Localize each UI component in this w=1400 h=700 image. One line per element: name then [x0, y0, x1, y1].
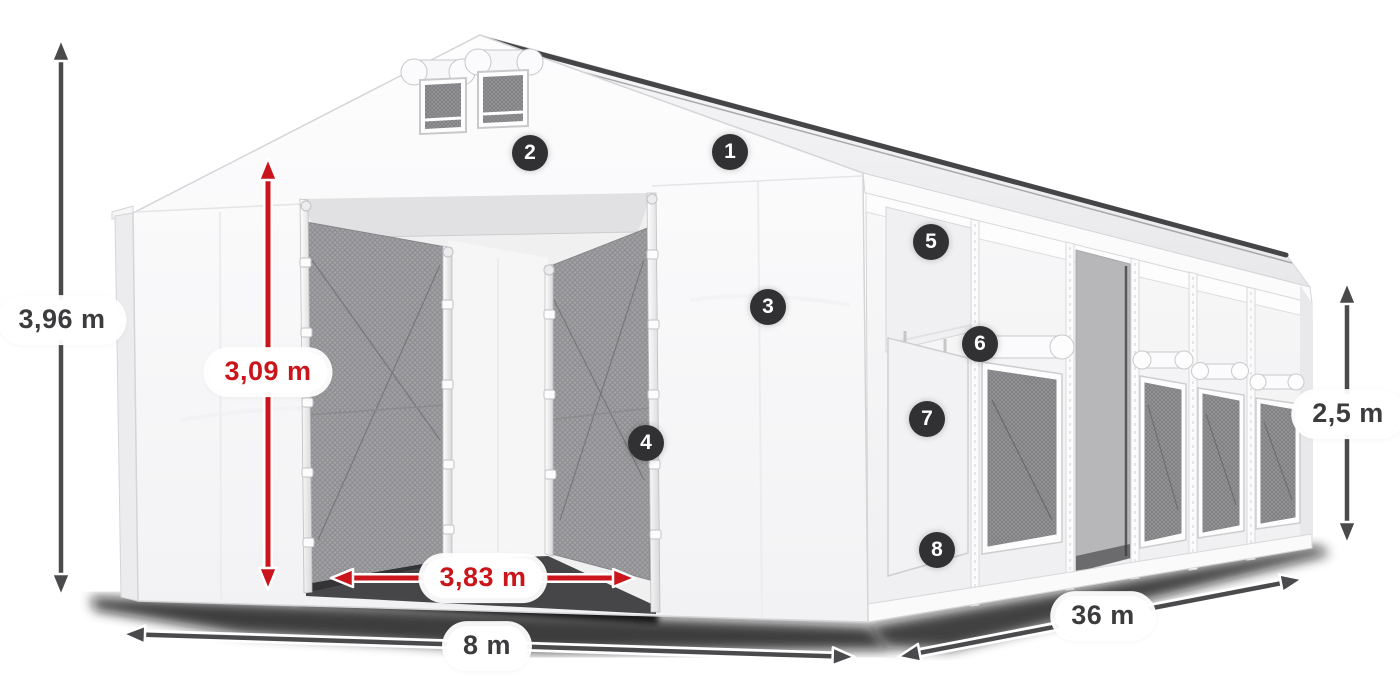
callout-badge-7[interactable]: 7	[909, 401, 945, 437]
entrance-opening	[300, 193, 661, 614]
entrance-mesh-panel-right	[548, 227, 650, 580]
tent-illustration	[0, 0, 1400, 700]
dim-label-entrance-width: 3,83 m	[423, 558, 542, 598]
callout-badge-4[interactable]: 4	[628, 425, 664, 461]
dim-label-side-length: 36 m	[1055, 596, 1151, 636]
dim-label-total-height: 3,96 m	[2, 300, 121, 340]
callout-badge-3[interactable]: 3	[750, 289, 786, 325]
dim-label-entrance-height: 3,09 m	[208, 352, 327, 392]
entrance-mesh-panel-left	[306, 222, 446, 592]
side-doorway-opening	[1076, 250, 1130, 572]
tent-product-diagram: 3,96 m 3,09 m 3,83 m 8 m 36 m 2,5 m 1 2 …	[0, 0, 1400, 700]
callout-badge-1[interactable]: 1	[712, 134, 748, 170]
callout-badge-2[interactable]: 2	[512, 135, 548, 171]
dim-label-side-height: 2,5 m	[1296, 394, 1400, 434]
callout-badge-5[interactable]: 5	[913, 224, 949, 260]
callout-badge-8[interactable]: 8	[919, 532, 955, 568]
callout-badge-6[interactable]: 6	[962, 326, 998, 362]
dim-label-front-width: 8 m	[447, 626, 527, 666]
